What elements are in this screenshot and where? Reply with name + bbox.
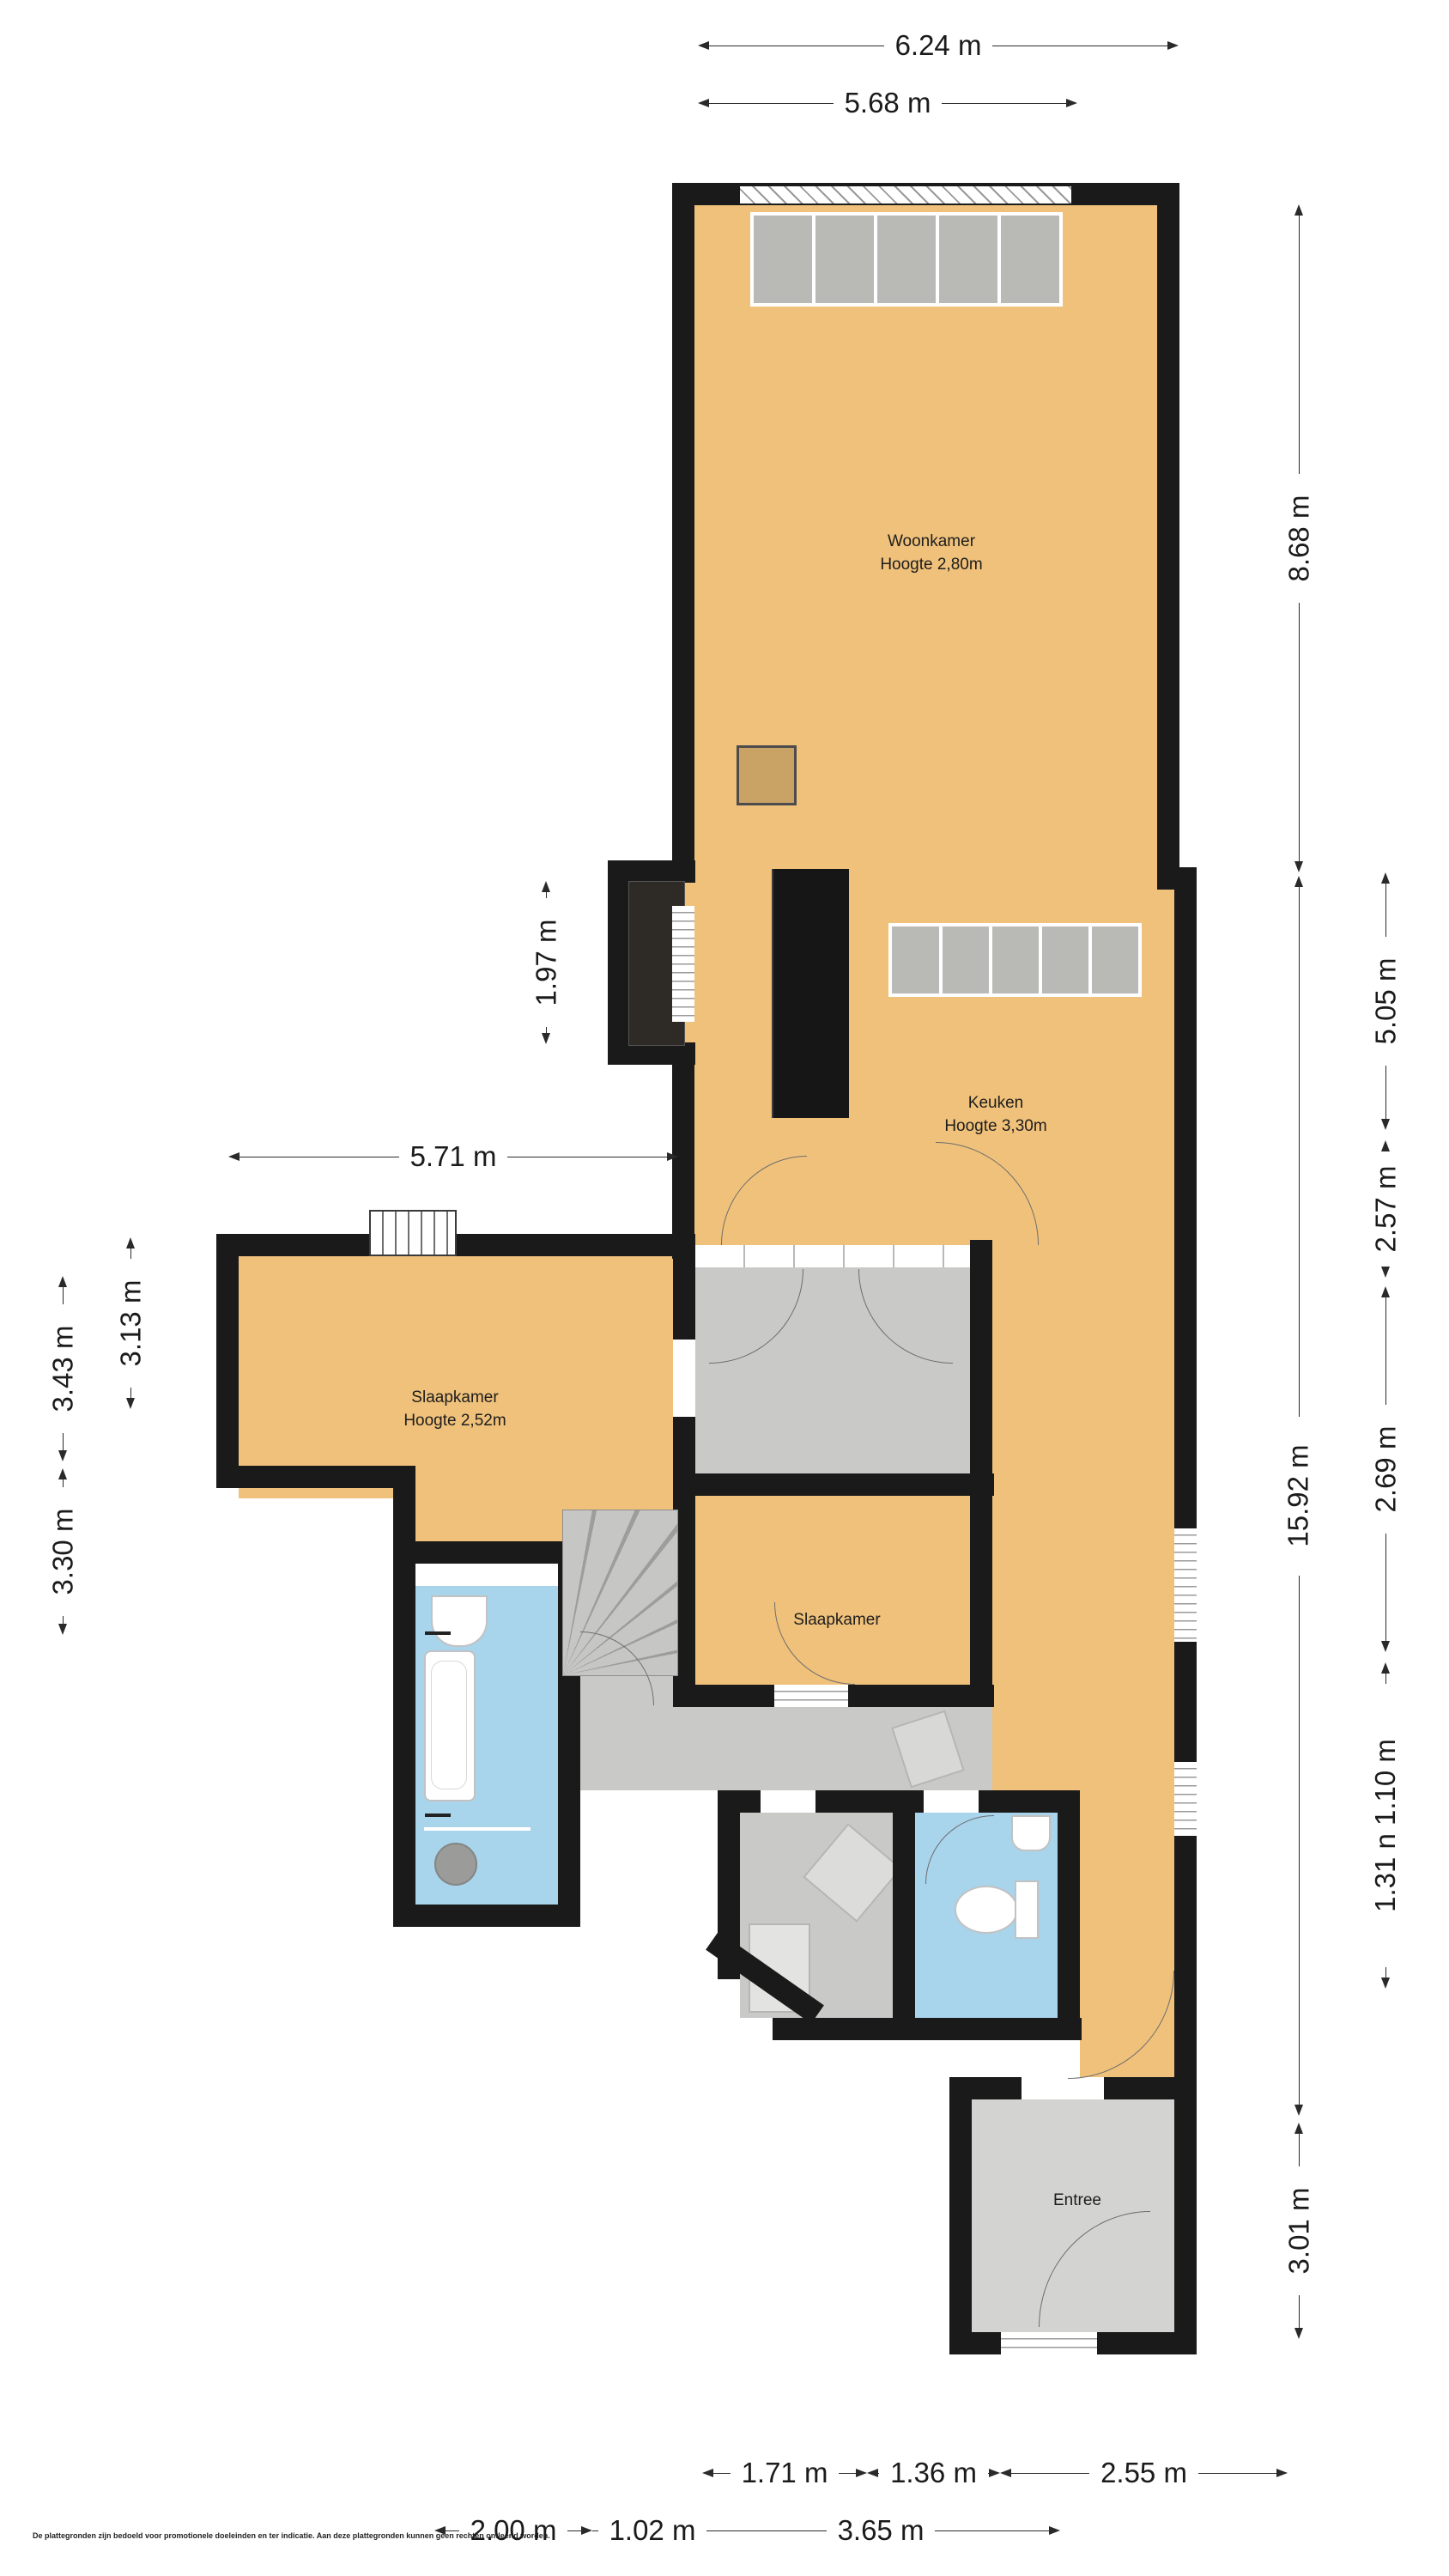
window-mullion [812, 216, 815, 303]
arrow-left-icon [698, 41, 709, 50]
arrow-up-icon [1381, 1140, 1390, 1151]
room-label-woonkamer: Woonkamer Hoogte 2,80m [837, 531, 1026, 576]
door-gap-entree-top [1022, 2077, 1104, 2099]
dimension-left-3-43: 3.43 m [47, 1276, 78, 1461]
dimension-top-2: 5.68 m [698, 88, 1077, 118]
upper-stairs [369, 1210, 457, 1256]
arrow-up-icon [1381, 1286, 1390, 1297]
dimension-bottom-1-36: 1.36 m [867, 2458, 1000, 2488]
arrow-right-icon [1167, 41, 1179, 50]
front-door-gap [1001, 2332, 1097, 2354]
door-gap-slaapkamer-2 [774, 1685, 848, 1707]
kitchen-counter-gray [888, 923, 1142, 997]
dim-line [1385, 1297, 1386, 1405]
dim-label: 5.05 m [1343, 937, 1429, 1066]
dimension-left-3-30: 3.30 m [47, 1468, 78, 1635]
dim-label: 2.57 m [1343, 1151, 1429, 1267]
dimension-bottom-2-00: 2.00 m [434, 2515, 592, 2546]
dim-line [63, 1433, 64, 1450]
wall [949, 2077, 972, 2354]
bathroom-faucet [425, 1814, 451, 1817]
dim-line [1385, 1534, 1386, 1641]
bathroom-sink [431, 1595, 488, 1647]
toilet-bowl [955, 1886, 1018, 1934]
floorplan-canvas: Woonkamer Hoogte 2,80m Keuken Hoogte 3,3… [0, 0, 1449, 2576]
counter-divider [989, 927, 992, 993]
toilet-sink [1011, 1815, 1051, 1851]
dimension-right-2-57: 2.57 m [1370, 1140, 1401, 1278]
dim-label: 3.43 m [20, 1304, 106, 1433]
toilet-tank [1015, 1880, 1039, 1939]
dimension-top-1: 6.24 m [698, 30, 1179, 61]
dim-label: 1.02 m [598, 2514, 707, 2547]
arrow-up-icon [1381, 1662, 1390, 1674]
arrow-down-icon [1381, 1119, 1390, 1130]
dim-line [63, 1616, 64, 1624]
dim-line [839, 2473, 856, 2474]
window-top [740, 186, 1071, 204]
dim-line [1299, 2134, 1300, 2166]
room-name: Slaapkamer [743, 1609, 931, 1632]
dim-line [546, 892, 547, 898]
dim-label: 2.00 m [459, 2514, 568, 2547]
dimension-right-8-68: 8.68 m [1283, 204, 1314, 872]
room-height: Hoogte 2,52m [361, 1410, 549, 1433]
dim-label: 1.97 m [503, 898, 590, 1027]
dim-line [709, 46, 884, 46]
dim-line [1299, 216, 1300, 474]
counter-divider [1088, 927, 1092, 993]
dim-line [1385, 1674, 1386, 1684]
room-label-slaapkamer-2: Slaapkamer [743, 1609, 931, 1632]
dim-line [63, 1287, 64, 1304]
arrow-up-icon [1381, 872, 1390, 884]
window-right-corridor [1174, 1528, 1197, 1642]
arrow-down-icon [58, 1624, 67, 1635]
arrow-up-icon [58, 1276, 67, 1287]
arrow-down-icon [1294, 861, 1303, 872]
arrow-down-icon [1294, 2328, 1303, 2339]
arrow-up-icon [58, 1468, 67, 1479]
dim-line [1385, 884, 1386, 937]
arrow-down-icon [58, 1450, 67, 1461]
wall [216, 1466, 415, 1488]
dim-line [507, 1157, 667, 1157]
dim-line [1011, 2473, 1089, 2474]
dimension-bottom-1-02: 1.02 m [592, 2515, 712, 2546]
dim-label: 1.71 m [731, 2457, 840, 2489]
arrow-right-icon [1049, 2526, 1060, 2535]
dimension-right-1-31-1-10: 1.31 n 1.10 m [1370, 1662, 1401, 1989]
dimension-right-3-01: 3.01 m [1283, 2123, 1314, 2339]
dim-line [239, 1157, 399, 1157]
room-label-keuken: Keuken Hoogte 3,30m [901, 1092, 1090, 1138]
arrow-down-icon [1381, 1978, 1390, 1989]
window-right-lower [1174, 1762, 1197, 1836]
counter-divider [939, 927, 943, 993]
window-mullion [874, 216, 877, 303]
dimension-balcony-1-97: 1.97 m [530, 881, 561, 1044]
disclaimer-text: De plattegronden zijn bedoeld voor promo… [33, 2531, 410, 2540]
room-name: Entree [983, 2190, 1172, 2213]
floor-slaapkamer-1 [239, 1256, 673, 1498]
dim-line [130, 1388, 131, 1398]
dimension-bottom-1-71: 1.71 m [702, 2458, 867, 2488]
dim-line [63, 1479, 64, 1487]
arrow-left-icon [228, 1152, 239, 1161]
arrow-up-icon [1294, 204, 1303, 216]
window-mullion [997, 216, 1001, 303]
dim-line [130, 1249, 131, 1259]
dim-label: 5.71 m [399, 1140, 508, 1173]
towel-bar [424, 1827, 530, 1831]
door-gap-vestibule-left [673, 1340, 695, 1417]
dim-line [1299, 603, 1300, 861]
room-height: Hoogte 2,80m [837, 554, 1026, 577]
dim-label: 3.65 m [827, 2514, 936, 2547]
bathroom-faucet [425, 1631, 451, 1635]
dim-line [546, 1027, 547, 1033]
dimension-left-3-13: 3.13 m [115, 1237, 146, 1409]
room-height: Hoogte 3,30m [901, 1115, 1090, 1139]
dim-line [1299, 887, 1300, 1417]
wall [773, 2018, 1082, 2040]
bathroom-stool [434, 1843, 477, 1886]
door-gap-small-room [761, 1790, 815, 1813]
dim-label: 5.68 m [834, 87, 943, 119]
room-name: Keuken [901, 1092, 1090, 1115]
dimension-right-2-69: 2.69 m [1370, 1286, 1401, 1652]
wall [672, 183, 694, 870]
dim-line [1198, 2473, 1276, 2474]
dim-label: 1.31 n 1.10 m [1299, 1684, 1449, 1967]
table [737, 745, 797, 805]
dim-label: 15.92 m [1247, 1417, 1349, 1576]
arrow-left-icon [867, 2469, 878, 2477]
dim-line [992, 46, 1167, 46]
dim-line [712, 2530, 827, 2531]
room-name: Slaapkamer [361, 1387, 549, 1410]
dim-label: 3.30 m [20, 1487, 106, 1616]
arrow-down-icon [1381, 1641, 1390, 1652]
arrow-up-icon [1294, 876, 1303, 887]
arrow-down-icon [1381, 1267, 1390, 1278]
window-mullion [936, 216, 939, 303]
wall [1157, 183, 1179, 878]
wall [393, 1541, 415, 1927]
arrow-right-icon [989, 2469, 1000, 2477]
vestibule-glass-wall [695, 1245, 970, 1267]
room-name: Woonkamer [837, 531, 1026, 554]
arrow-right-icon [581, 2526, 592, 2535]
dim-line [1385, 1967, 1386, 1978]
arrow-right-icon [856, 2469, 867, 2477]
arrow-up-icon [126, 1237, 135, 1249]
balcony-door [672, 906, 694, 1022]
room-label-entree: Entree [983, 2190, 1172, 2213]
dim-label: 2.69 m [1343, 1405, 1429, 1534]
arrow-left-icon [698, 99, 709, 107]
wall [970, 1240, 992, 1685]
dim-line [1385, 1066, 1386, 1119]
dim-label: 8.68 m [1256, 474, 1343, 603]
bathtub-inner [431, 1661, 467, 1789]
arrow-down-icon [126, 1398, 135, 1409]
floor-corridor-right [992, 1250, 1185, 1791]
dim-line [1299, 2295, 1300, 2328]
dim-line [713, 2473, 731, 2474]
arrow-up-icon [1294, 2123, 1303, 2134]
dimension-right-5-05: 5.05 m [1370, 872, 1401, 1130]
arrow-right-icon [1276, 2469, 1288, 2477]
dimension-bottom-2-55: 2.55 m [1000, 2458, 1288, 2488]
arrow-left-icon [702, 2469, 713, 2477]
arrow-up-icon [542, 881, 550, 892]
arrow-left-icon [1000, 2469, 1011, 2477]
counter-divider [1039, 927, 1042, 993]
dimension-bottom-3-65: 3.65 m [712, 2515, 1060, 2546]
dim-line [935, 2530, 1049, 2531]
dim-line [567, 2530, 581, 2531]
arrow-down-icon [542, 1033, 550, 1044]
dim-label: 2.55 m [1089, 2457, 1198, 2489]
dimension-5-71: 5.71 m [228, 1141, 678, 1172]
dim-line [709, 103, 834, 104]
dim-line [942, 103, 1066, 104]
door-gap-toilet [924, 1790, 979, 1813]
arrow-down-icon [1294, 2105, 1303, 2116]
room-label-slaapkamer-1: Slaapkamer Hoogte 2,52m [361, 1387, 549, 1432]
dim-label: 6.24 m [884, 29, 993, 62]
window-block-top [750, 212, 1063, 307]
dim-label: 3.01 m [1256, 2166, 1343, 2295]
wall [893, 1813, 915, 2018]
arrow-right-icon [1066, 99, 1077, 107]
wall [216, 1234, 239, 1488]
wall [673, 1473, 994, 1496]
kitchen-counter-black [772, 869, 849, 1118]
arrow-right-icon [667, 1152, 678, 1161]
dim-label: 1.36 m [879, 2457, 988, 2489]
wall [393, 1905, 580, 1927]
balcony-wall [608, 860, 630, 1065]
